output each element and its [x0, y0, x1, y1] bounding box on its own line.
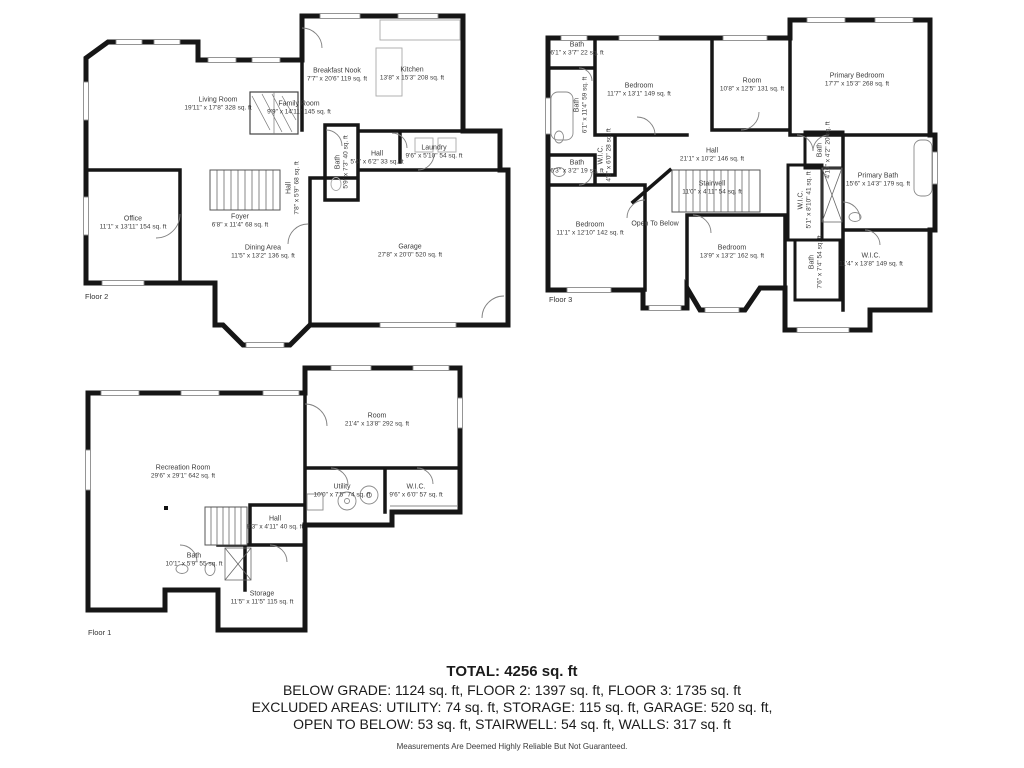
room-label-f2-hall-stairs: Hall 7'8" x 5'9" 68 sq. ft: [285, 161, 302, 214]
room-name: Bath: [550, 41, 603, 50]
room-label-f3-wic-149: W.I.C. 11'4" x 13'8" 149 sq. ft: [839, 252, 903, 269]
room-dims: 4'8" x 6'0" 28 sq. ft: [606, 128, 614, 181]
floor-label-2: Floor 2: [85, 292, 108, 301]
room-dims: 7'8" x 5'9" 68 sq. ft: [294, 161, 302, 214]
room-name: Bedroom: [607, 82, 671, 91]
room-dims: 21'1" x 10'2" 146 sq. ft: [680, 156, 744, 164]
room-label-f1-utility: Utility 10'0" x 7'5" 74 sq. ft: [314, 483, 371, 500]
room-dims: 29'6" x 29'1" 642 sq. ft: [151, 473, 215, 481]
room-label-f3-open-to-below: Open To Below: [631, 220, 678, 229]
room-dims: 17'7" x 15'3" 268 sq. ft: [825, 81, 889, 89]
room-label-f3-primary-bedroom: Primary Bedroom 17'7" x 15'3" 268 sq. ft: [825, 72, 889, 89]
room-name: Office: [100, 215, 167, 224]
room-dims: 7'6" x 7'4" 54 sq. ft: [817, 235, 825, 288]
room-label-f3-primary-bath: Primary Bath 15'6" x 14'3" 179 sq. ft: [846, 172, 910, 189]
room-name: Room: [720, 77, 784, 86]
room-label-f3-bath-19: Bath 6'3" x 3'2" 19 sq. ft: [550, 159, 603, 176]
room-label-f3-bedroom-1: Bedroom 11'7" x 13'1" 149 sq. ft: [607, 82, 671, 99]
room-label-f3-stairwell: Stairwell 11'0" x 4'11" 54 sq. ft: [682, 180, 742, 197]
room-dims: 9'9" x 14'11" 145 sq. ft: [267, 109, 331, 117]
room-dims: 6'1" x 3'7" 22 sq. ft: [550, 50, 603, 58]
room-dims: 11'1" x 12'10" 142 sq. ft: [556, 230, 623, 238]
room-label-f3-bath-54: Bath 7'6" x 7'4" 54 sq. ft: [808, 235, 825, 288]
floor-label-3: Floor 3: [549, 295, 572, 304]
room-name: Open To Below: [631, 220, 678, 229]
room-label-f3-bedroom-center: Bedroom 13'9" x 13'2" 162 sq. ft: [700, 244, 764, 261]
room-dims: 8'3" x 4'11" 40 sq. ft: [247, 524, 303, 532]
room-label-f1-bath: Bath 10'1" x 5'9" 55 sq. ft: [166, 552, 223, 569]
summary-disclaimer: Measurements Are Deemed Highly Reliable …: [0, 742, 1024, 751]
room-name: Bedroom: [556, 221, 623, 230]
room-dims: 11'1" x 13'11" 154 sq. ft: [100, 224, 167, 232]
room-name: Storage: [231, 590, 294, 599]
room-dims: 9'6" x 6'0" 57 sq. ft: [389, 492, 442, 500]
room-name: Breakfast Nook: [307, 67, 367, 76]
room-dims: 4'10" x 4'2" 20 sq. ft: [825, 122, 833, 179]
room-label-f2-breakfast-nook: Breakfast Nook 7'7" x 20'6" 119 sq. ft: [307, 67, 367, 84]
room-label-f1-wic: W.I.C. 9'6" x 6'0" 57 sq. ft: [389, 483, 442, 500]
room-dims: 10'1" x 5'9" 55 sq. ft: [166, 561, 223, 569]
support-post-icon: [164, 506, 168, 510]
room-dims: 13'9" x 13'2" 162 sq. ft: [700, 253, 764, 261]
room-dims: 11'0" x 4'11" 54 sq. ft: [682, 189, 742, 197]
room-dims: 6'3" x 3'2" 19 sq. ft: [550, 168, 603, 176]
room-label-f1-recreation-room: Recreation Room 29'6" x 29'1" 642 sq. ft: [151, 464, 215, 481]
room-dims: 11'4" x 13'8" 149 sq. ft: [839, 261, 903, 269]
room-label-f2-bath: Bath 5'9" x 7'3" 40 sq. ft: [334, 135, 351, 188]
room-dims: 5'4" x 6'2" 33 sq. ft: [350, 159, 403, 167]
room-name: W.I.C.: [839, 252, 903, 261]
room-dims: 5'1" x 8'10" 41 sq. ft: [806, 172, 814, 229]
summary-line-floors: BELOW GRADE: 1124 sq. ft, FLOOR 2: 1397 …: [0, 682, 1024, 699]
room-label-f3-bedroom-left: Bedroom 11'1" x 12'10" 142 sq. ft: [556, 221, 623, 238]
room-label-f3-bath-20: Bath 4'10" x 4'2" 20 sq. ft: [816, 122, 833, 179]
room-dims: 10'8" x 12'5" 131 sq. ft: [720, 86, 784, 94]
room-label-f3-bath-22: Bath 6'1" x 3'7" 22 sq. ft: [550, 41, 603, 58]
room-label-f2-garage: Garage 27'8" x 20'0" 520 sq. ft: [378, 243, 442, 260]
room-name: Recreation Room: [151, 464, 215, 473]
room-label-f3-room: Room 10'8" x 12'5" 131 sq. ft: [720, 77, 784, 94]
room-label-f2-office: Office 11'1" x 13'11" 154 sq. ft: [100, 215, 167, 232]
room-name: Hall: [680, 147, 744, 156]
floor-label-1: Floor 1: [88, 628, 111, 637]
room-label-f2-foyer: Foyer 6'8" x 11'4" 68 sq. ft: [212, 213, 268, 230]
room-label-f3-wic-41: W.I.C. 5'1" x 8'10" 41 sq. ft: [797, 172, 814, 229]
room-label-f2-kitchen: Kitchen 13'8" x 15'3" 208 sq. ft: [380, 66, 444, 83]
room-name: Hall: [285, 161, 294, 214]
room-name: Bath: [550, 159, 603, 168]
room-label-f3-hall: Hall 21'1" x 10'2" 146 sq. ft: [680, 147, 744, 164]
room-name: Bath: [334, 135, 343, 188]
room-dims: 5'9" x 7'3" 40 sq. ft: [343, 135, 351, 188]
floorplan-page: Living Room 19'11" x 17'8" 328 sq. ft Fa…: [0, 0, 1024, 768]
room-name: Bath: [573, 77, 582, 133]
summary-block: TOTAL: 4256 sq. ft BELOW GRADE: 1124 sq.…: [0, 662, 1024, 751]
room-label-f1-room: Room 21'4" x 13'8" 292 sq. ft: [345, 412, 409, 429]
room-name: Bath: [166, 552, 223, 561]
summary-line-excluded: EXCLUDED AREAS: UTILITY: 74 sq. ft, STOR…: [0, 699, 1024, 716]
room-label-f2-laundry: Laundry 9'6" x 5'10" 54 sq. ft: [406, 144, 463, 161]
room-dims: 27'8" x 20'0" 520 sq. ft: [378, 252, 442, 260]
room-label-f1-storage: Storage 11'5" x 11'5" 115 sq. ft: [231, 590, 294, 607]
room-name: Bath: [808, 235, 817, 288]
room-label-f3-bath-59: Bath 6'1" x 11'4" 59 sq. ft: [573, 77, 590, 133]
room-name: Foyer: [212, 213, 268, 222]
room-dims: 21'4" x 13'8" 292 sq. ft: [345, 421, 409, 429]
room-dims: 6'8" x 11'4" 68 sq. ft: [212, 222, 268, 230]
room-dims: 10'0" x 7'5" 74 sq. ft: [314, 492, 371, 500]
room-name: Stairwell: [682, 180, 742, 189]
room-name: Hall: [247, 515, 303, 524]
summary-total: TOTAL: 4256 sq. ft: [0, 662, 1024, 682]
room-name: Kitchen: [380, 66, 444, 75]
room-dims: 13'8" x 15'3" 208 sq. ft: [380, 75, 444, 83]
room-name: Bedroom: [700, 244, 764, 253]
room-label-f2-dining-area: Dining Area 11'5" x 13'2" 136 sq. ft: [231, 244, 295, 261]
summary-line-excluded-2: OPEN TO BELOW: 53 sq. ft, STAIRWELL: 54 …: [0, 716, 1024, 733]
room-label-f2-living-room: Living Room 19'11" x 17'8" 328 sq. ft: [184, 96, 251, 113]
room-name: Bath: [816, 122, 825, 179]
room-name: Garage: [378, 243, 442, 252]
room-dims: 6'1" x 11'4" 59 sq. ft: [582, 77, 590, 133]
room-name: Room: [345, 412, 409, 421]
room-name: Living Room: [184, 96, 251, 105]
room-label-f2-hall: Hall 5'4" x 6'2" 33 sq. ft: [350, 150, 403, 167]
room-dims: 11'5" x 13'2" 136 sq. ft: [231, 253, 295, 261]
room-name: Laundry: [406, 144, 463, 153]
floor1-stairs-icon: [205, 507, 247, 545]
room-name: Utility: [314, 483, 371, 492]
room-dims: 7'7" x 20'6" 119 sq. ft: [307, 76, 367, 84]
room-dims: 19'11" x 17'8" 328 sq. ft: [184, 105, 251, 113]
room-dims: 15'6" x 14'3" 179 sq. ft: [846, 181, 910, 189]
room-name: Dining Area: [231, 244, 295, 253]
room-name: Hall: [350, 150, 403, 159]
room-label-f2-family-room: Family Room 9'9" x 14'11" 145 sq. ft: [267, 100, 331, 117]
room-dims: 9'6" x 5'10" 54 sq. ft: [406, 153, 463, 161]
room-dims: 11'5" x 11'5" 115 sq. ft: [231, 599, 294, 607]
floor2-stairs-icon: [210, 170, 280, 210]
room-label-f1-hall: Hall 8'3" x 4'11" 40 sq. ft: [247, 515, 303, 532]
room-name: W.I.C.: [389, 483, 442, 492]
room-dims: 11'7" x 13'1" 149 sq. ft: [607, 91, 671, 99]
room-name: Family Room: [267, 100, 331, 109]
room-name: Primary Bath: [846, 172, 910, 181]
room-name: W.I.C.: [797, 172, 806, 229]
room-name: Primary Bedroom: [825, 72, 889, 81]
